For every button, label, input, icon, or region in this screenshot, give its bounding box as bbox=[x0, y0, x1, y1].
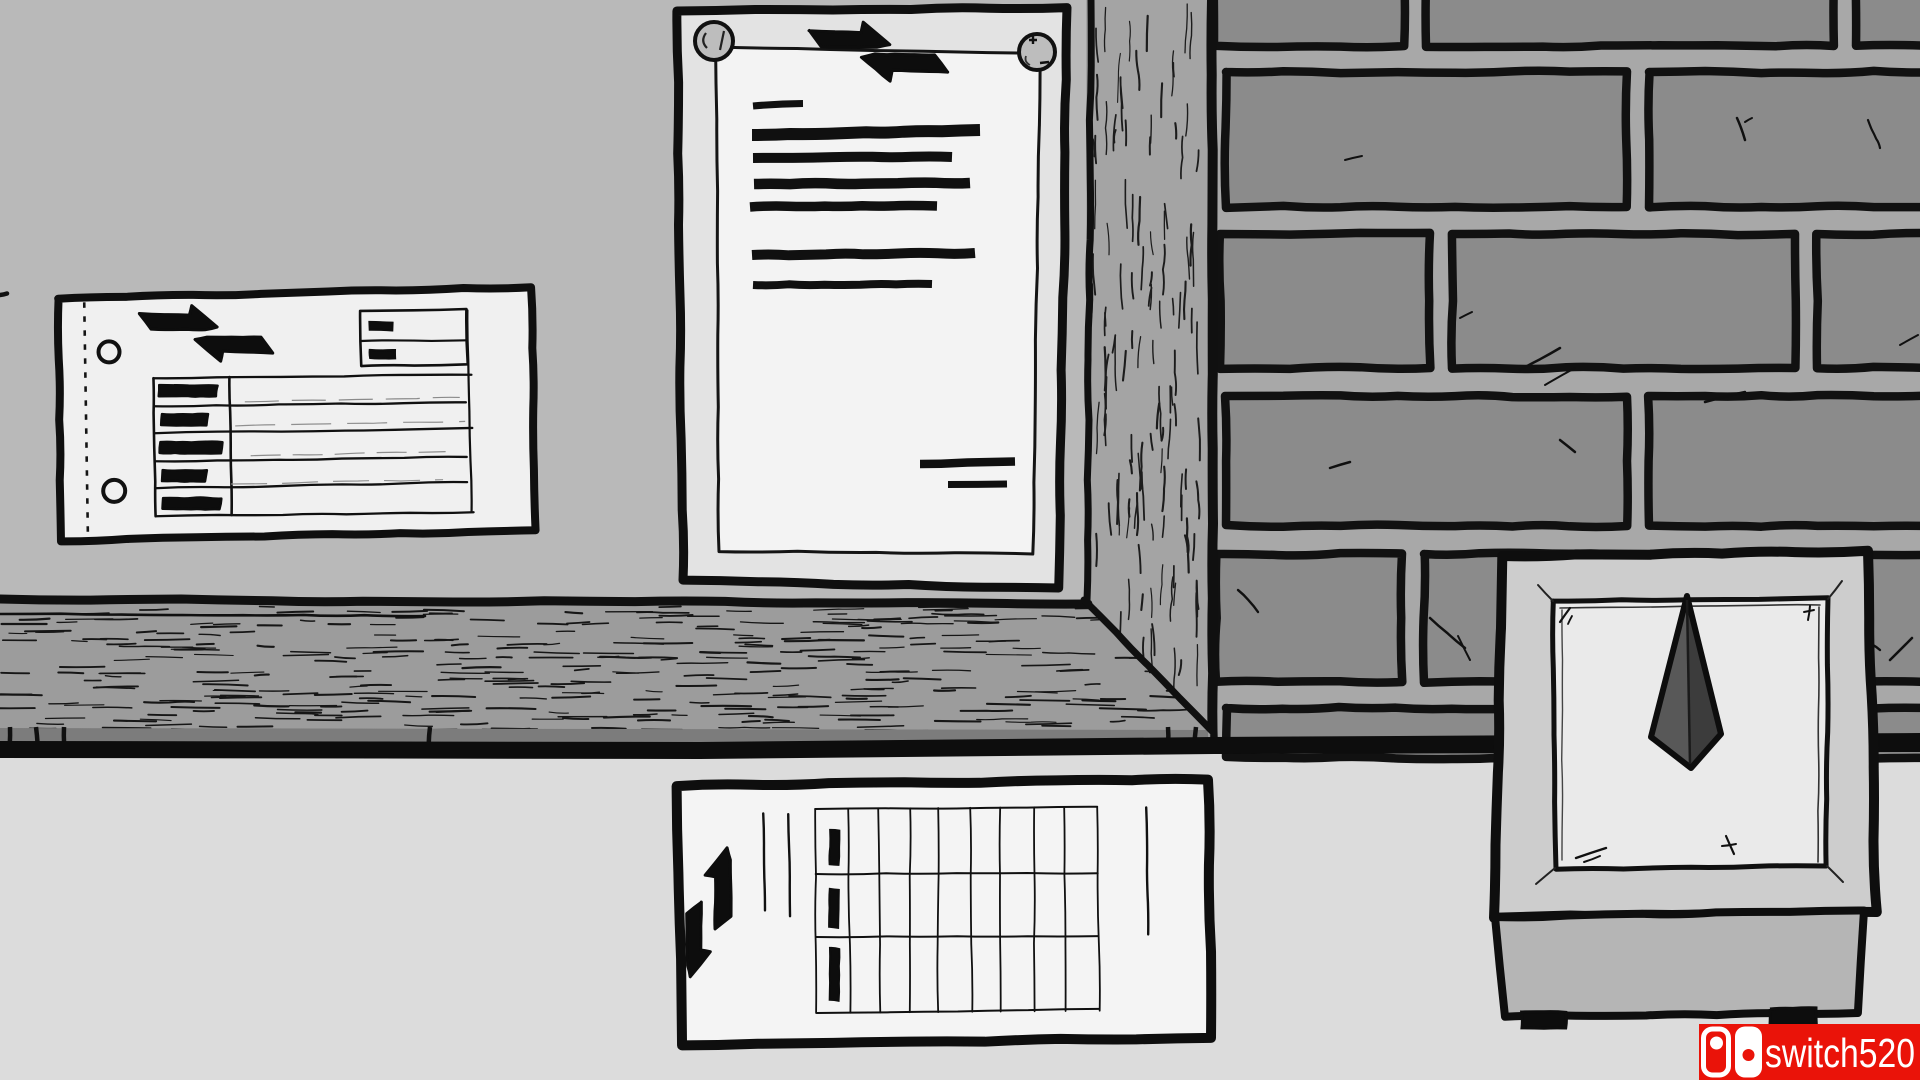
svg-text:switch520: switch520 bbox=[1765, 1030, 1915, 1076]
